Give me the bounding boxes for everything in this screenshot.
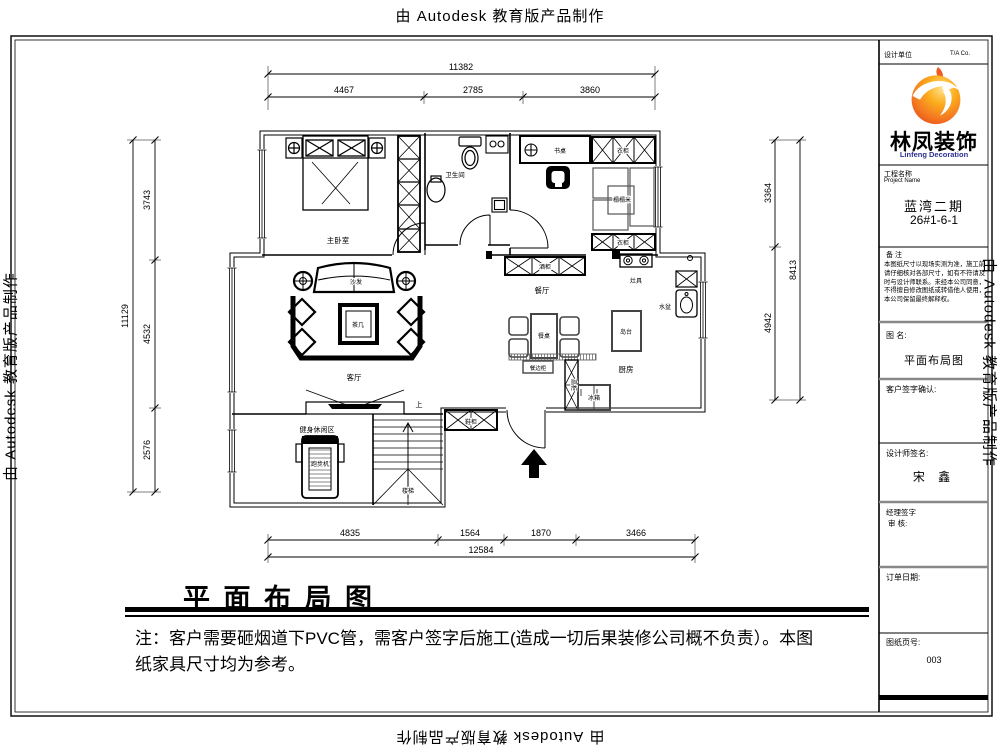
tb-brand-en: Linfeng Decoration: [879, 150, 989, 159]
tb-header-left: 设计单位: [884, 50, 912, 60]
label-stove: 灶具: [630, 277, 642, 285]
dim-bottom-overall: 12584: [468, 545, 493, 555]
label-master-bedroom: 主卧室: [327, 235, 350, 245]
tb-manager-label: 经理签字: [886, 507, 916, 518]
tb-notes-text: 本图纸尺寸以现场实测为准，施工前请仔细核对各部尺寸，如有不符请及时与设计师联系。…: [884, 261, 985, 305]
label-stairs-up: 上: [416, 400, 423, 409]
label-shoe-cabinet: 鞋柜: [465, 418, 477, 426]
dimension-texts: 11382 4467 2785 3860 11129 3743 4532 257…: [120, 62, 798, 555]
dim-top-seg1: 4467: [334, 85, 354, 95]
tb-client-sign-label: 客户签字确认:: [886, 384, 936, 395]
tb-order-date-label: 订单日期:: [886, 572, 920, 583]
label-tall-cabinet: 高柜: [570, 379, 578, 391]
nightstand-icons: [286, 138, 385, 158]
label-stairs: 楼梯: [402, 487, 414, 495]
label-treadmill: 跑步机: [311, 460, 329, 468]
dim-left-seg1: 3743: [142, 190, 152, 210]
label-dining-room: 餐厅: [535, 286, 550, 295]
dim-top-overall: 11382: [449, 62, 473, 72]
dim-top-seg3: 3860: [580, 85, 600, 95]
tb-project-label-en: Project Name: [884, 178, 920, 184]
entry-arrow-icon: [521, 449, 547, 478]
tb-designer-label: 设计师签名:: [886, 448, 928, 459]
label-wardrobe-bottom: 衣柜: [617, 239, 629, 247]
dim-left-overall: 11129: [120, 304, 130, 328]
label-bathroom: 卫生间: [445, 170, 465, 179]
tb-audit-label: 审 核:: [888, 518, 907, 529]
footer-note-line1: 注：客户需要砸烟道下PVC管，需客户签字后施工(造成一切后果装修公司概不负责）。…: [135, 624, 813, 649]
footer-note-line2: 纸家具尺寸均为参考。: [135, 650, 305, 675]
label-fridge: 冰箱: [588, 394, 600, 402]
label-island: 岛台: [620, 328, 632, 336]
dim-right-seg1: 3364: [763, 183, 773, 203]
tb-designer-name: 宋 鑫: [879, 468, 989, 485]
counter-ledge: [509, 354, 596, 360]
desk-chair-icon: [546, 166, 570, 189]
sheet-frame: [11, 36, 992, 716]
dim-top-seg2: 2785: [463, 85, 483, 95]
tb-project-no: 26#1-6-1: [879, 213, 989, 227]
tv-cabinet-icon: [306, 390, 404, 414]
vanity-icon: [486, 136, 508, 212]
title-rule-thin: [125, 615, 869, 617]
bedroom-closet-icon: [398, 136, 420, 252]
watermark-right: 由 Autodesk 教育版产品制作: [980, 253, 1000, 473]
label-wardrobe-top: 衣柜: [617, 147, 629, 155]
tb-drawing-name: 平面布局图: [879, 352, 989, 368]
tb-page-label: 图纸页号:: [886, 637, 920, 648]
label-sink: 水盆: [659, 303, 671, 311]
dim-bottom-seg4: 3466: [626, 528, 646, 538]
plan-labels: 主卧室 卫生间 书桌 衣柜 榻榻米 衣柜 沙发 茶几 客厅 餐厅 酒柜 餐桌 餐…: [300, 147, 672, 495]
dim-bottom-seg2: 1564: [460, 528, 480, 538]
tb-notes-label: 备 注: [886, 250, 902, 260]
label-tatami: 榻榻米: [613, 196, 631, 204]
watermark-left: 由 Autodesk 教育版产品制作: [0, 267, 21, 487]
tb-page-number: 003: [879, 655, 989, 665]
watermark-bottom: 由 Autodesk 教育版产品制作: [0, 727, 1000, 748]
linfeng-logo-icon: [906, 66, 966, 126]
label-desk: 书桌: [554, 147, 566, 155]
dim-right-seg2: 4942: [763, 313, 773, 333]
dim-right-overall: 8413: [788, 260, 798, 280]
label-living-room: 客厅: [347, 372, 362, 382]
bed-icon: [303, 136, 368, 210]
dim-left-seg2: 4532: [142, 324, 152, 344]
label-coffee-table: 茶几: [352, 321, 364, 329]
tb-drawing-name-label: 图 名:: [886, 330, 906, 341]
label-kitchen: 厨房: [619, 364, 634, 374]
label-dining-table: 餐桌: [538, 332, 550, 340]
title-rule-thick: [125, 607, 869, 612]
label-fitness-area: 健身休闲区: [300, 425, 335, 434]
label-sofa: 沙发: [350, 278, 362, 286]
kitchen-sink-icon: [676, 271, 697, 317]
watermark-top: 由 Autodesk 教育版产品制作: [0, 5, 1000, 26]
label-wine-cabinet: 酒柜: [539, 263, 551, 271]
dim-bottom-seg1: 4835: [340, 528, 360, 538]
tb-header-right: T/A Co.: [950, 51, 970, 57]
dim-left-seg3: 2576: [142, 440, 152, 460]
basin-icon: [427, 176, 445, 202]
toilet-icon: [459, 137, 481, 169]
dim-bottom-seg3: 1870: [531, 528, 551, 538]
label-sideboard: 餐边柜: [530, 364, 547, 372]
